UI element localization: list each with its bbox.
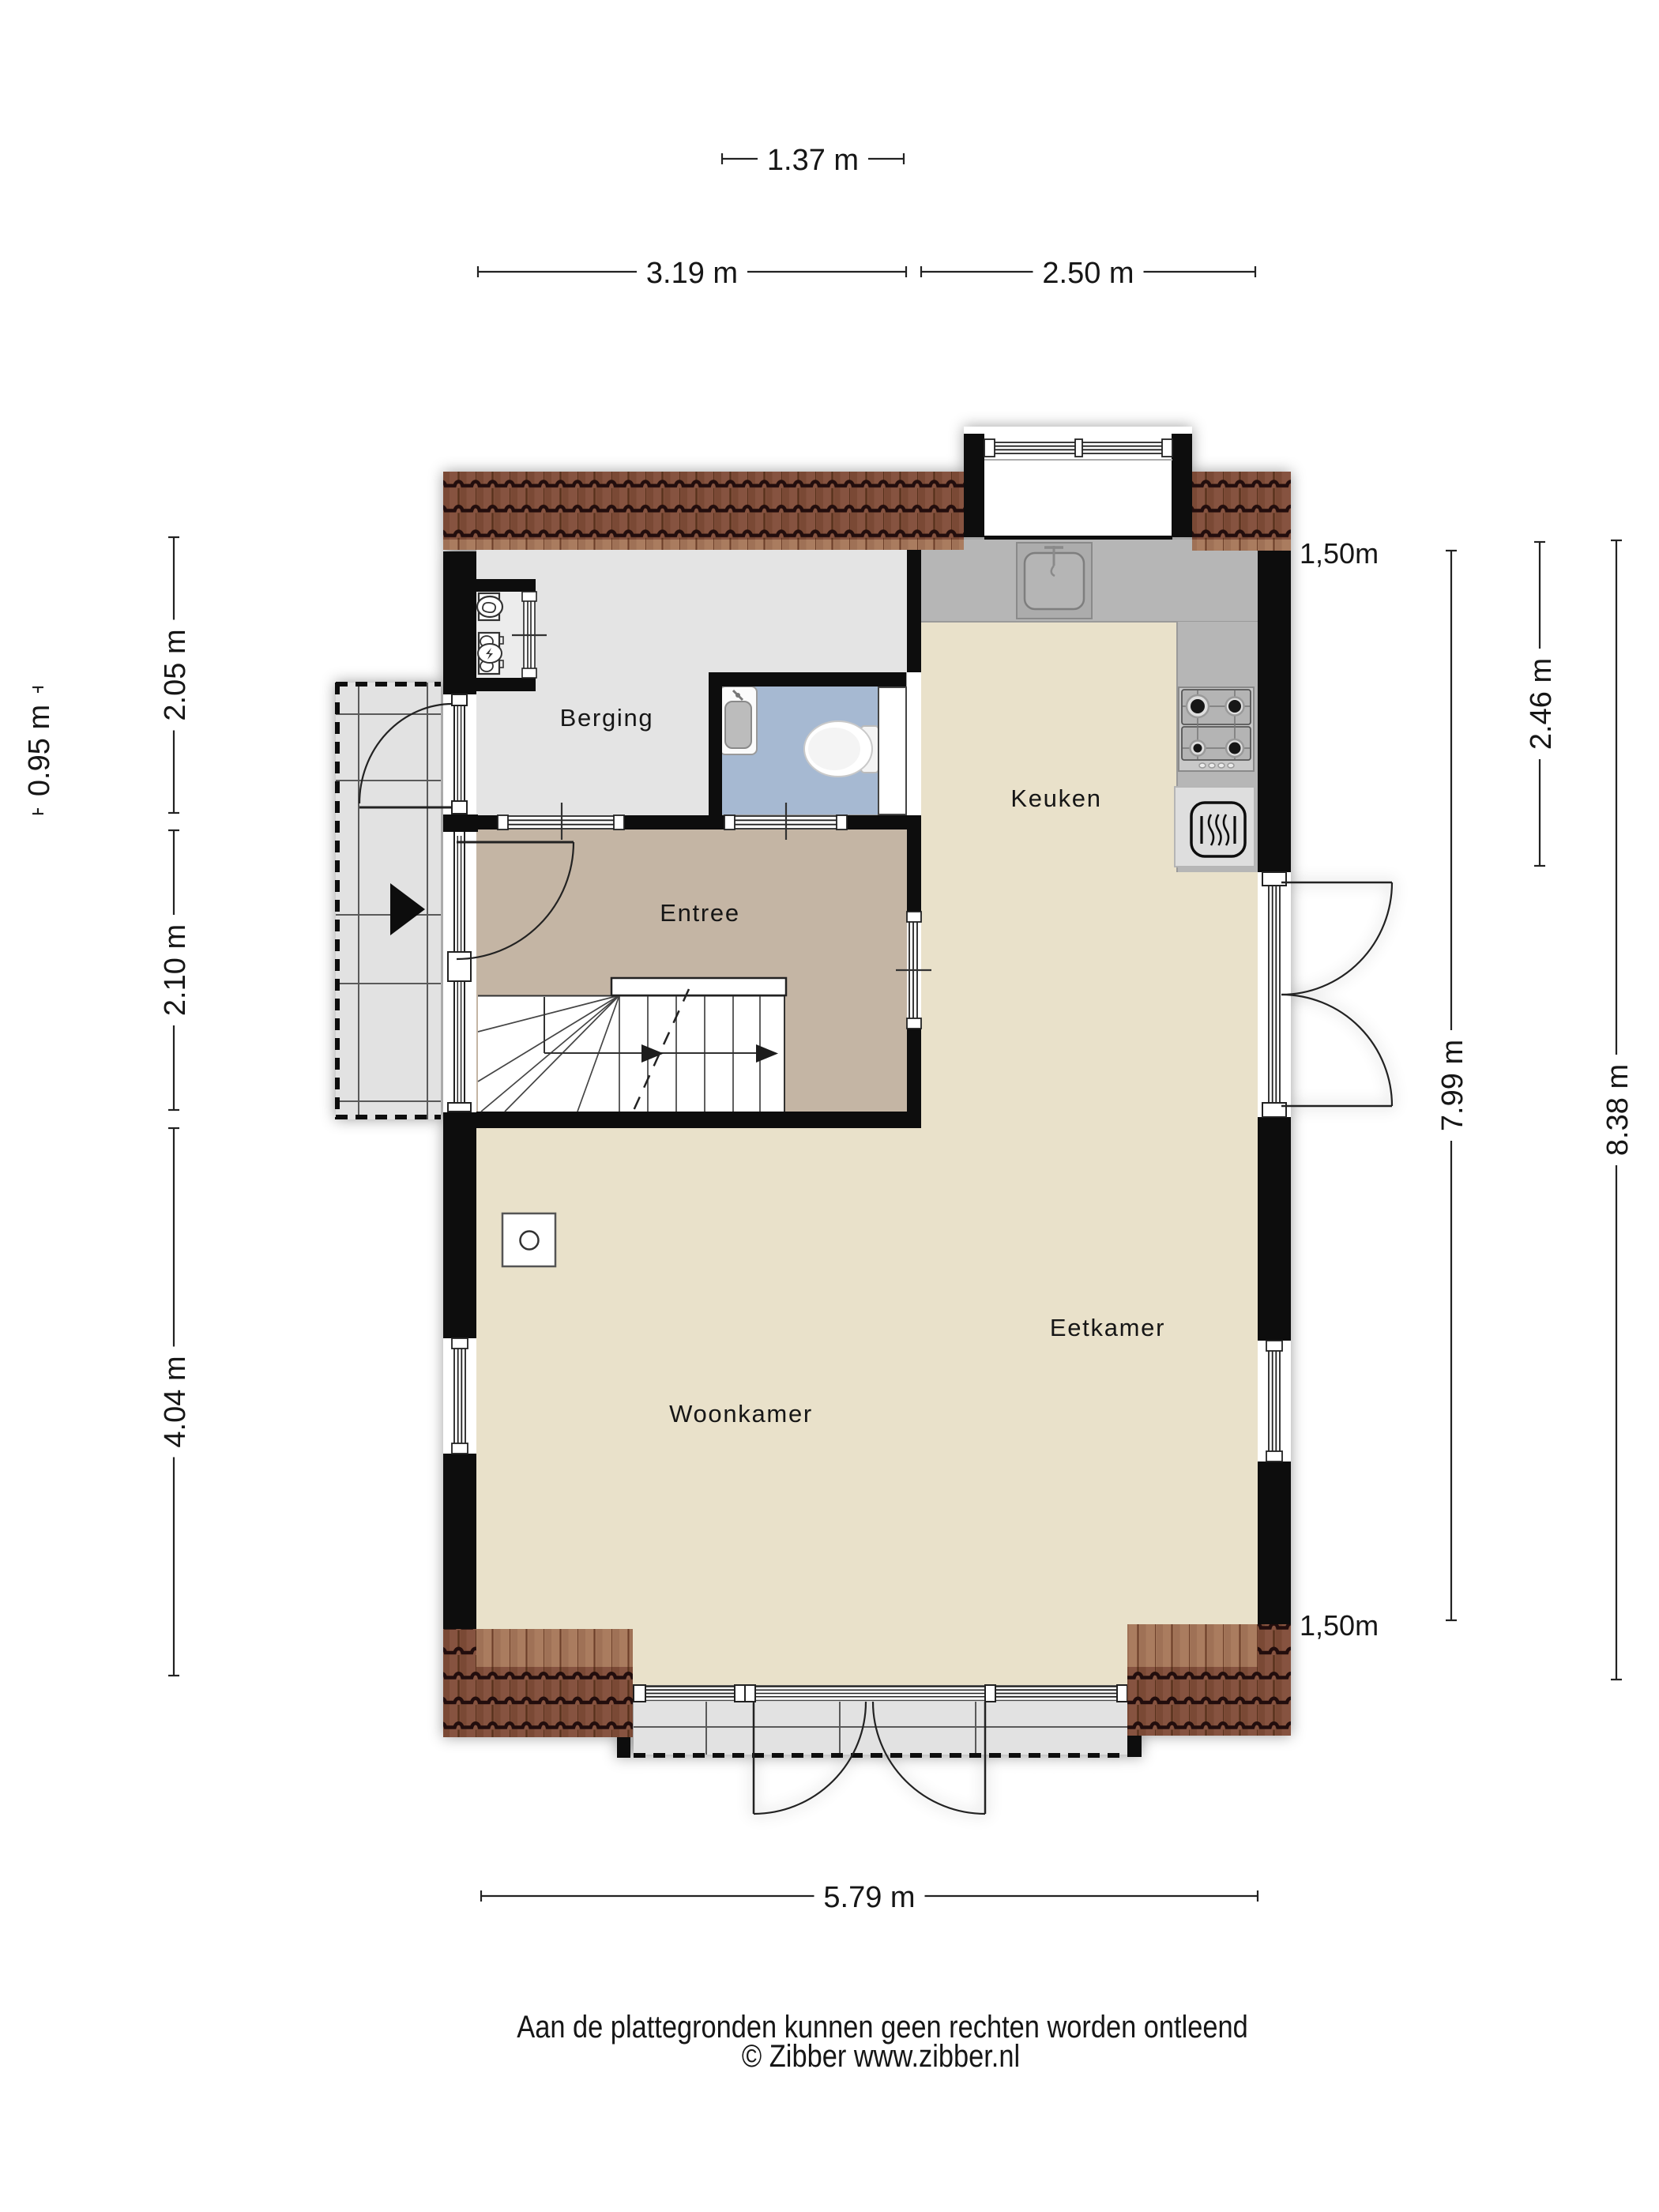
svg-text:2.50 m: 2.50 m (1042, 257, 1134, 290)
svg-text:2.46 m: 2.46 m (1525, 658, 1558, 750)
svg-text:0.95 m: 0.95 m (23, 705, 56, 796)
svg-text:7.99 m: 7.99 m (1436, 1040, 1469, 1131)
svg-text:Eetkamer: Eetkamer (1050, 1314, 1165, 1341)
svg-text:2.10 m: 2.10 m (159, 924, 192, 1016)
svg-text:5.79 m: 5.79 m (823, 1881, 915, 1914)
svg-text:© Zibber www.zibber.nl: © Zibber www.zibber.nl (742, 2038, 1020, 2074)
svg-text:Woonkamer: Woonkamer (669, 1400, 813, 1428)
svg-text:4.04 m: 4.04 m (159, 1356, 192, 1447)
svg-text:8.38 m: 8.38 m (1601, 1064, 1635, 1156)
svg-text:1,50m: 1,50m (1300, 1609, 1379, 1642)
svg-text:Berging: Berging (560, 704, 654, 732)
svg-text:Keuken: Keuken (1010, 784, 1101, 812)
svg-text:1,50m: 1,50m (1300, 537, 1379, 570)
svg-text:2.05 m: 2.05 m (159, 629, 192, 720)
svg-text:3.19 m: 3.19 m (646, 257, 738, 290)
svg-text:1.37 m: 1.37 m (767, 144, 859, 177)
svg-text:Entree: Entree (660, 899, 740, 927)
